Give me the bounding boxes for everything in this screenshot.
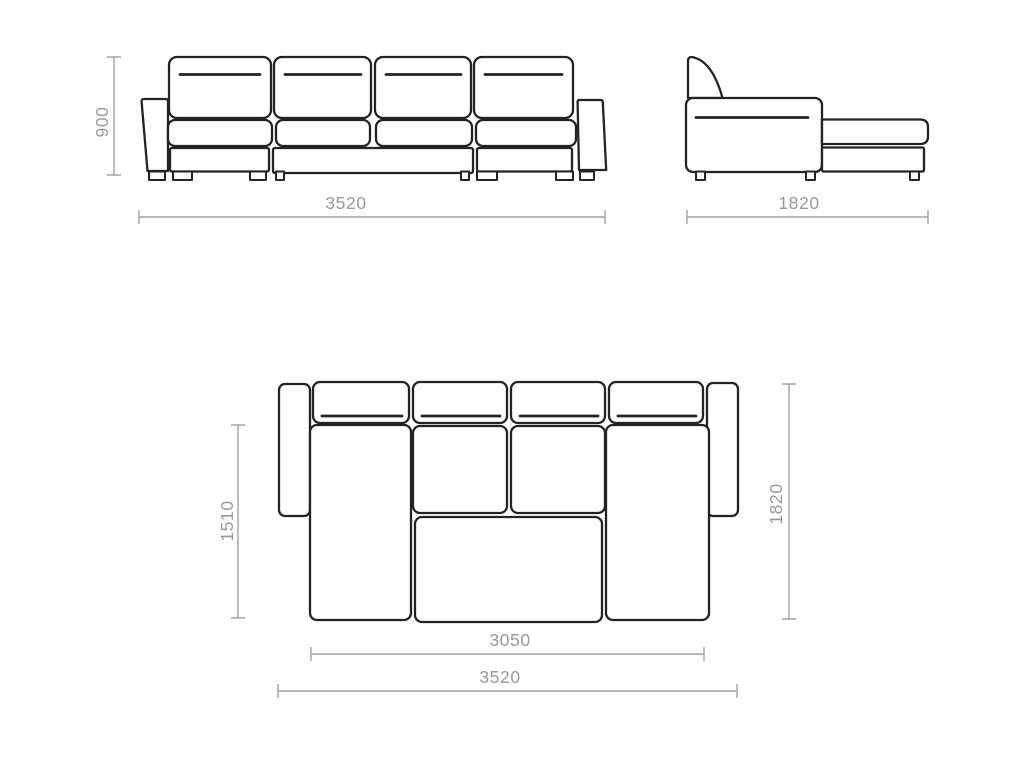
front-base-right — [477, 148, 572, 172]
front-back-cushion-3 — [375, 57, 471, 118]
front-back-cushion-1 — [169, 57, 271, 118]
side-backrest — [688, 57, 723, 98]
front-foot-5 — [477, 172, 497, 181]
front-width-dimension-label: 3520 — [325, 193, 366, 213]
front-foot-armrest-left — [149, 172, 165, 181]
plan-armrest-left — [279, 384, 310, 516]
front-armrest-right — [578, 100, 607, 170]
front-seat-cushion-4 — [476, 120, 576, 146]
side-chaise-base — [822, 148, 924, 172]
front-base-middle — [273, 148, 473, 173]
front-foot-2 — [250, 172, 266, 181]
front-foot-6 — [556, 172, 573, 181]
side-depth-dimension-label: 1820 — [778, 193, 819, 213]
front-foot-1 — [173, 172, 192, 181]
side-foot-3 — [910, 172, 919, 181]
front-seat-cushion-1 — [168, 120, 272, 146]
plan-view: 1510 1820 3050 3520 — [217, 382, 796, 698]
plan-width-dimension-label: 3520 — [479, 667, 520, 687]
plan-seat-cushion-2 — [511, 426, 605, 513]
plan-chaise-right — [606, 425, 709, 620]
side-armrest-body — [686, 98, 822, 172]
front-width-dimension-line — [139, 210, 605, 224]
front-base-left — [170, 148, 269, 172]
front-foot-armrest-right — [580, 172, 594, 181]
plan-inner-width-dimension-label: 3050 — [489, 630, 530, 650]
sofa-dimension-diagram: 900 3520 1820 — [0, 0, 1024, 768]
front-foot-4 — [461, 172, 469, 181]
front-height-dimension-label: 900 — [92, 107, 112, 138]
plan-armrest-right — [707, 383, 738, 516]
front-seat-cushion-2 — [276, 120, 370, 146]
plan-seat-depth-dimension-label: 1510 — [217, 500, 237, 541]
side-view: 1820 — [686, 57, 928, 224]
front-back-cushion-4 — [474, 57, 573, 118]
side-chaise-cushion — [822, 120, 928, 145]
front-seat-cushion-3 — [376, 120, 472, 146]
plan-seat-cushion-1 — [413, 426, 507, 513]
front-back-cushion-2 — [274, 57, 371, 118]
front-foot-3 — [276, 172, 284, 181]
plan-bed-section — [415, 517, 602, 622]
front-armrest-left — [142, 99, 168, 171]
technical-drawing-page: 900 3520 1820 — [0, 0, 1024, 768]
plan-depth-dimension-label: 1820 — [766, 483, 786, 524]
plan-chaise-left — [310, 425, 411, 620]
side-foot-1 — [696, 172, 705, 181]
side-foot-2 — [806, 172, 815, 181]
front-view: 900 3520 — [92, 57, 606, 224]
